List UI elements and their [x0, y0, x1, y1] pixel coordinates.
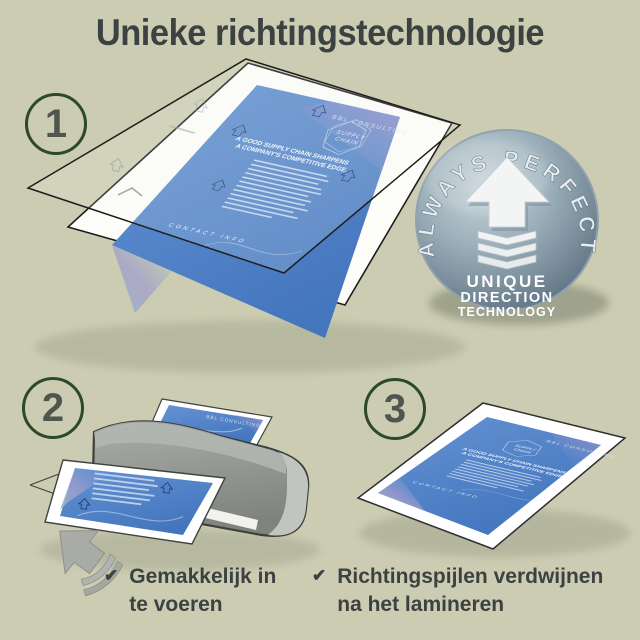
caption-easy-feed-line2: te voeren [129, 593, 222, 616]
caption-easy-feed-text: Gemakkelijk in te voeren [129, 563, 276, 618]
document-ground-shadow [35, 321, 465, 373]
badge-line1: UNIQUE [466, 272, 547, 291]
caption-arrows-disappear: ✔ Richtingspijlen verdwijnen na het lami… [312, 563, 603, 618]
caption-easy-feed: ✔ Gemakkelijk in te voeren [104, 563, 276, 618]
lamination-pouch-outline [28, 59, 460, 273]
step-2-number: 2 [42, 386, 64, 431]
step-3-number-badge: 3 [364, 378, 426, 440]
checkmark-icon: ✔ [104, 563, 118, 618]
step1-illustration: BBL CONSULTING SUPPLY CHAIN A GOOD SUPPL… [0, 55, 640, 390]
step-1-number-badge: 1 [25, 93, 87, 155]
step-3-number: 3 [384, 387, 406, 432]
badge-line3: TECHNOLOGY [458, 305, 556, 319]
step-2-number-badge: 2 [22, 377, 84, 439]
caption-arrows-line1: Richtingspijlen verdwijnen [337, 565, 603, 588]
badge-line2: DIRECTION [460, 290, 553, 306]
checkmark-icon: ✔ [312, 563, 326, 618]
caption-arrows-disappear-text: Richtingspijlen verdwijnen na het lamine… [337, 563, 603, 618]
caption-arrows-line2: na het lamineren [337, 593, 504, 616]
caption-easy-feed-line1: Gemakkelijk in [129, 565, 276, 588]
page-title: Unieke richtingstechnologie [22, 12, 617, 54]
step-1-number: 1 [45, 102, 67, 147]
